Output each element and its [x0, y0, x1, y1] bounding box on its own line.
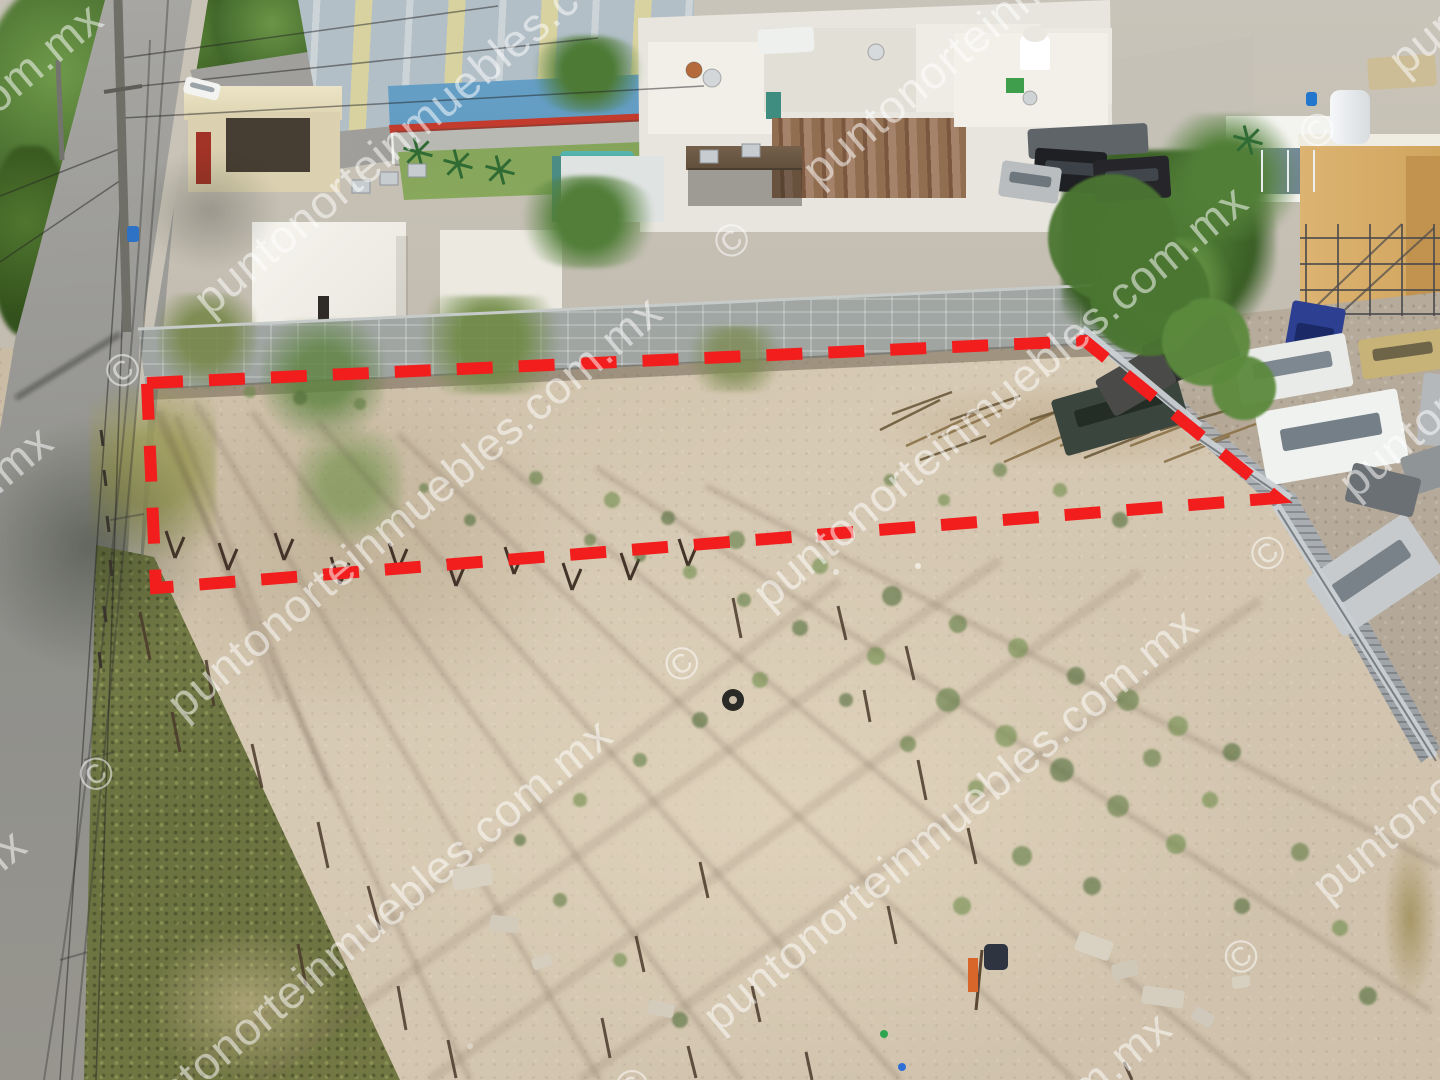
litter-spot — [898, 1063, 906, 1071]
weed-tuft — [1143, 749, 1161, 767]
dry-branch — [1004, 434, 1068, 462]
palm-tree — [500, 159, 511, 170]
roadside-post — [104, 470, 106, 486]
dry-stick — [918, 760, 926, 800]
junkyard-car — [1358, 328, 1440, 380]
roadside-post — [107, 516, 109, 532]
ac-unit — [408, 164, 426, 177]
ac-unit — [742, 144, 760, 157]
dry-stick — [172, 712, 180, 752]
weed-tuft — [692, 712, 708, 728]
weed-tuft — [419, 483, 429, 493]
weed-tuft — [1332, 920, 1348, 936]
weed-tuft — [839, 693, 853, 707]
weed-tuft — [900, 736, 916, 752]
survey-stake — [572, 569, 581, 590]
weed-tuft — [293, 391, 307, 405]
junkyard-car — [1367, 54, 1437, 91]
palm-tree — [1248, 129, 1259, 140]
palm-tree — [447, 164, 458, 175]
scene-overlay-svg — [0, 0, 1440, 1080]
dry-stick — [252, 744, 262, 788]
palm-tree — [418, 141, 429, 152]
weed-tuft — [1053, 483, 1067, 497]
palm-tree — [489, 170, 500, 181]
dry-stick — [864, 690, 870, 722]
weed-tuft — [1168, 716, 1188, 736]
rooftop-water-tank — [1023, 91, 1037, 105]
concrete-debris — [1110, 959, 1139, 981]
weed-tuft — [938, 494, 950, 506]
dry-stick — [206, 660, 214, 706]
wall-top-edge — [138, 285, 1102, 329]
power-line — [0, 178, 124, 262]
concrete-debris — [489, 915, 519, 934]
junkyard-car — [757, 27, 814, 55]
dry-branch — [880, 400, 940, 430]
dry-stick — [318, 822, 328, 868]
dry-branch — [920, 436, 986, 460]
litter-spot — [467, 1043, 473, 1049]
weed-tuft — [1291, 843, 1309, 861]
dark-cloth-marker — [984, 944, 1008, 970]
concrete-debris — [1074, 930, 1115, 961]
weed-tuft — [604, 492, 620, 508]
tire-track — [580, 600, 1260, 1080]
weed-tuft — [683, 565, 697, 579]
ac-unit — [700, 150, 718, 163]
litter-spot — [915, 563, 921, 569]
weed-tuft — [633, 753, 647, 767]
junkyard-car — [1367, 54, 1437, 91]
weed-tuft — [993, 463, 1007, 477]
dry-stick — [806, 1052, 812, 1080]
powerline-shadow-streak — [176, 416, 330, 790]
blue-barrel — [1306, 92, 1317, 106]
roadside-post — [110, 560, 112, 576]
orange-marker-flag — [968, 958, 978, 992]
dry-stick — [1124, 1062, 1132, 1080]
concrete-debris — [1231, 975, 1250, 989]
rooftop-water-tank — [868, 44, 884, 60]
weed-tuft — [1234, 898, 1250, 914]
weed-tuft — [573, 793, 587, 807]
weed-tuft — [613, 953, 627, 967]
tree-foliage — [1212, 356, 1276, 420]
junkyard-car — [1416, 372, 1440, 447]
rooftop-water-tank — [703, 69, 721, 87]
weed-tuft — [1112, 512, 1128, 528]
survey-stake — [175, 537, 184, 558]
palm-tree — [1237, 140, 1248, 151]
weed-tuft — [936, 688, 960, 712]
concrete-debris — [1141, 985, 1185, 1009]
weed-tuft — [792, 620, 808, 636]
litter-spot — [833, 569, 839, 575]
dry-stick — [752, 986, 760, 1022]
weed-tuft — [553, 893, 567, 907]
dry-stick — [602, 1018, 610, 1058]
weed-tuft — [584, 534, 596, 546]
roadside-post — [99, 652, 101, 668]
old-tire-hub — [729, 696, 737, 704]
dry-stick — [368, 886, 380, 930]
palm-tree — [407, 152, 418, 163]
weed-tuft — [1117, 689, 1139, 711]
survey-stake — [679, 539, 688, 566]
litter-spot — [880, 1030, 888, 1038]
ac-unit — [380, 172, 398, 185]
weed-tuft — [1083, 877, 1101, 895]
junkyard-car — [757, 27, 814, 55]
weed-tuft — [1008, 638, 1028, 658]
dry-stick — [398, 986, 406, 1030]
weed-tuft — [884, 474, 896, 486]
tree-foliage — [1138, 252, 1198, 312]
weed-tuft — [1223, 743, 1241, 761]
weed-tuft — [1067, 667, 1085, 685]
rooftop-water-tank — [686, 62, 702, 78]
weed-tuft — [867, 647, 885, 665]
weed-tuft — [1166, 834, 1186, 854]
junkyard-car — [1416, 372, 1440, 447]
utility-pole — [118, 0, 127, 332]
survey-stake — [166, 531, 175, 558]
weed-tuft — [1107, 795, 1129, 817]
survey-stake — [563, 563, 572, 590]
weed-tuft — [354, 398, 366, 410]
weed-tuft — [882, 586, 902, 606]
utility-pole — [58, 60, 62, 160]
weed-tuft — [1359, 987, 1377, 1005]
weed-tuft — [1012, 846, 1032, 866]
weed-tuft — [995, 725, 1017, 747]
roadside-post — [101, 430, 103, 446]
weed-tuft — [812, 558, 828, 574]
dry-branch — [892, 392, 952, 414]
weed-tuft — [464, 514, 476, 526]
tire-track — [180, 580, 840, 1080]
ac-unit — [352, 180, 370, 193]
weed-tuft — [244, 386, 256, 398]
weed-tuft — [672, 1012, 688, 1028]
palm-tree — [458, 153, 469, 164]
weed-tuft — [1202, 792, 1218, 808]
dry-stick — [298, 944, 306, 986]
weed-tuft — [953, 897, 971, 915]
powerline-shadow-streak — [160, 410, 280, 700]
weed-tuft — [949, 615, 967, 633]
aerial-lot-photo: puntonorteinmuebles.com.mx © puntonortei… — [0, 0, 1440, 1080]
weed-tuft — [514, 834, 526, 846]
weed-tuft — [968, 780, 984, 796]
weed-tuft — [737, 593, 751, 607]
concrete-debris — [647, 999, 675, 1018]
weed-tuft — [661, 511, 675, 525]
weeds-group — [244, 386, 1377, 1028]
power-line — [122, 6, 498, 58]
dry-stick — [688, 1046, 696, 1078]
weed-tuft — [529, 471, 543, 485]
pole-shadow — [16, 334, 120, 398]
blue-barrel — [127, 226, 139, 242]
weed-tuft — [752, 672, 768, 688]
roadside-post — [104, 606, 106, 622]
concrete-debris — [1190, 1005, 1216, 1028]
weed-tuft — [1050, 758, 1074, 782]
dry-stick — [140, 612, 150, 660]
tire-track — [256, 560, 1000, 1080]
tire-track — [430, 572, 1140, 1080]
concrete-debris — [531, 953, 554, 971]
